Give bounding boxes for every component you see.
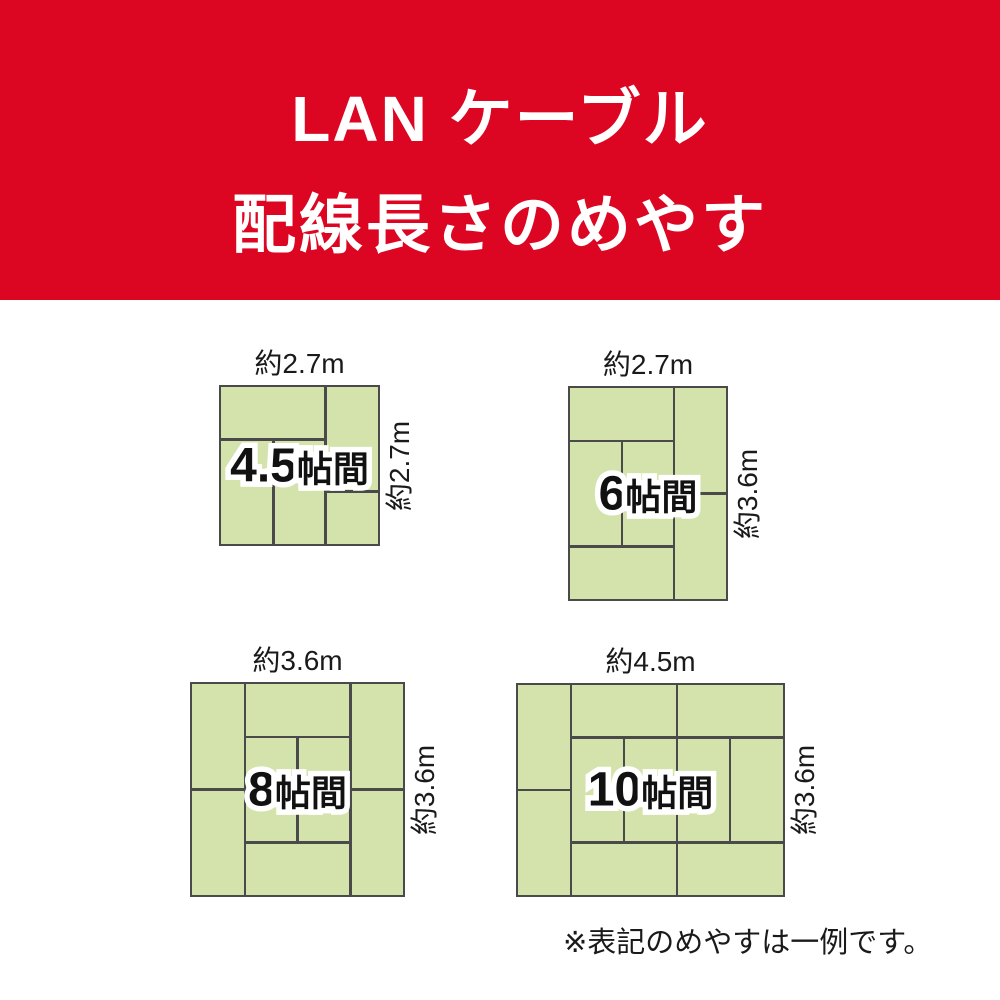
tatami-divider-line xyxy=(571,841,783,844)
room-8-size-number: 8 xyxy=(248,763,275,816)
room-8-size-suffix: 帖間 xyxy=(275,772,347,813)
room-4.5-height-label-strip: 約2.7m xyxy=(382,385,418,546)
room-4.5-height-label: 約2.7m xyxy=(386,420,414,510)
room-4.5-size-label: 4.5帖間 xyxy=(230,438,369,493)
room-8-height-label-strip: 約3.6m xyxy=(407,682,443,897)
room-8-width-label: 約3.6m xyxy=(252,647,342,675)
room-10-height-label-strip: 約3.6m xyxy=(787,683,823,897)
room-6-size-label: 6帖間 xyxy=(599,466,698,521)
tatami-divider-line xyxy=(350,788,403,791)
room-6-size-suffix: 帖間 xyxy=(625,476,697,517)
room-6-size-number: 6 xyxy=(599,467,626,520)
room-6-diagram: 約2.7m 約3.6m 6帖間 xyxy=(568,386,728,601)
tatami-divider-line xyxy=(571,736,783,739)
room-10-size-number: 10 xyxy=(588,764,641,817)
room-4.5-size-suffix: 帖間 xyxy=(297,448,369,489)
room-10-diagram: 約4.5m 約3.6m 10帖間 xyxy=(516,683,785,897)
room-10-size-label: 10帖間 xyxy=(588,763,713,818)
room-8-height-label: 約3.6m xyxy=(411,744,439,834)
tatami-divider-line xyxy=(729,738,732,843)
footnote-text: ※表記のめやすは一例です。 xyxy=(563,928,932,960)
room-4.5-width-label: 約2.7m xyxy=(254,350,344,378)
room-10-size-suffix: 帖間 xyxy=(641,773,713,814)
tatami-divider-line xyxy=(518,789,571,792)
room-10-height-label: 約3.6m xyxy=(791,745,819,835)
title-line-1: LAN ケーブル xyxy=(0,79,1000,159)
room-4.5-diagram: 約2.7m 約2.7m 4.5帖間 xyxy=(219,385,380,546)
tatami-divider-line xyxy=(192,788,245,791)
room-4.5-size-number: 4.5 xyxy=(230,439,297,492)
title-banner: LAN ケーブル 配線長さのめやす xyxy=(0,0,1000,300)
room-8-diagram: 約3.6m 約3.6m 8帖間 xyxy=(190,682,405,897)
room-6-height-label: 約3.6m xyxy=(734,448,762,538)
room-6-height-label-strip: 約3.6m xyxy=(730,386,766,601)
room-8-size-label: 8帖間 xyxy=(248,762,347,817)
title-line-2: 配線長さのめやす xyxy=(0,185,1000,265)
room-6-width-label: 約2.7m xyxy=(603,351,693,379)
room-10-width-label: 約4.5m xyxy=(605,648,695,676)
